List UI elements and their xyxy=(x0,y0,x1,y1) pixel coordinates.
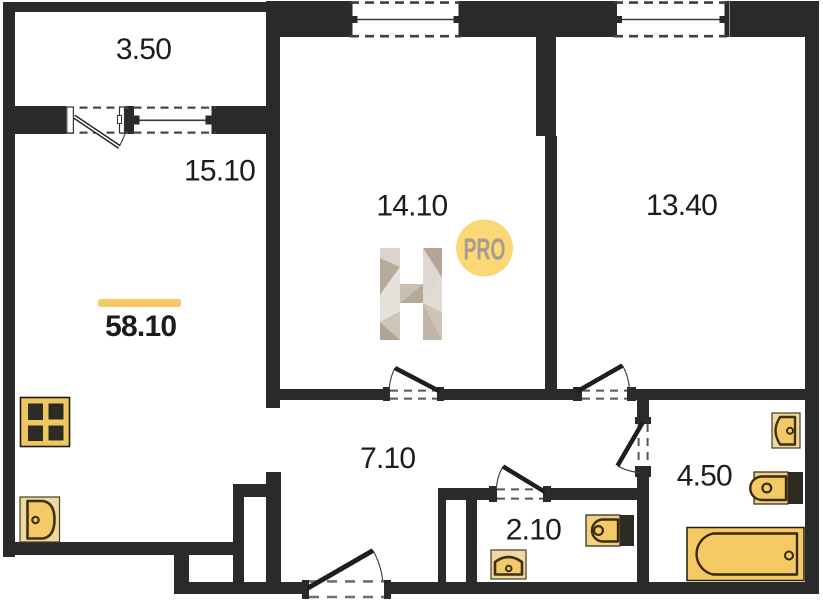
svg-text:3.50: 3.50 xyxy=(116,33,171,66)
svg-text:58.10: 58.10 xyxy=(105,310,176,343)
svg-text:PRO: PRO xyxy=(464,231,506,266)
svg-text:2.10: 2.10 xyxy=(506,514,561,547)
svg-text:14.10: 14.10 xyxy=(376,189,447,222)
svg-text:4.50: 4.50 xyxy=(677,459,732,492)
svg-text:13.40: 13.40 xyxy=(646,189,717,222)
svg-text:7.10: 7.10 xyxy=(360,442,415,475)
svg-text:15.10: 15.10 xyxy=(184,155,255,188)
